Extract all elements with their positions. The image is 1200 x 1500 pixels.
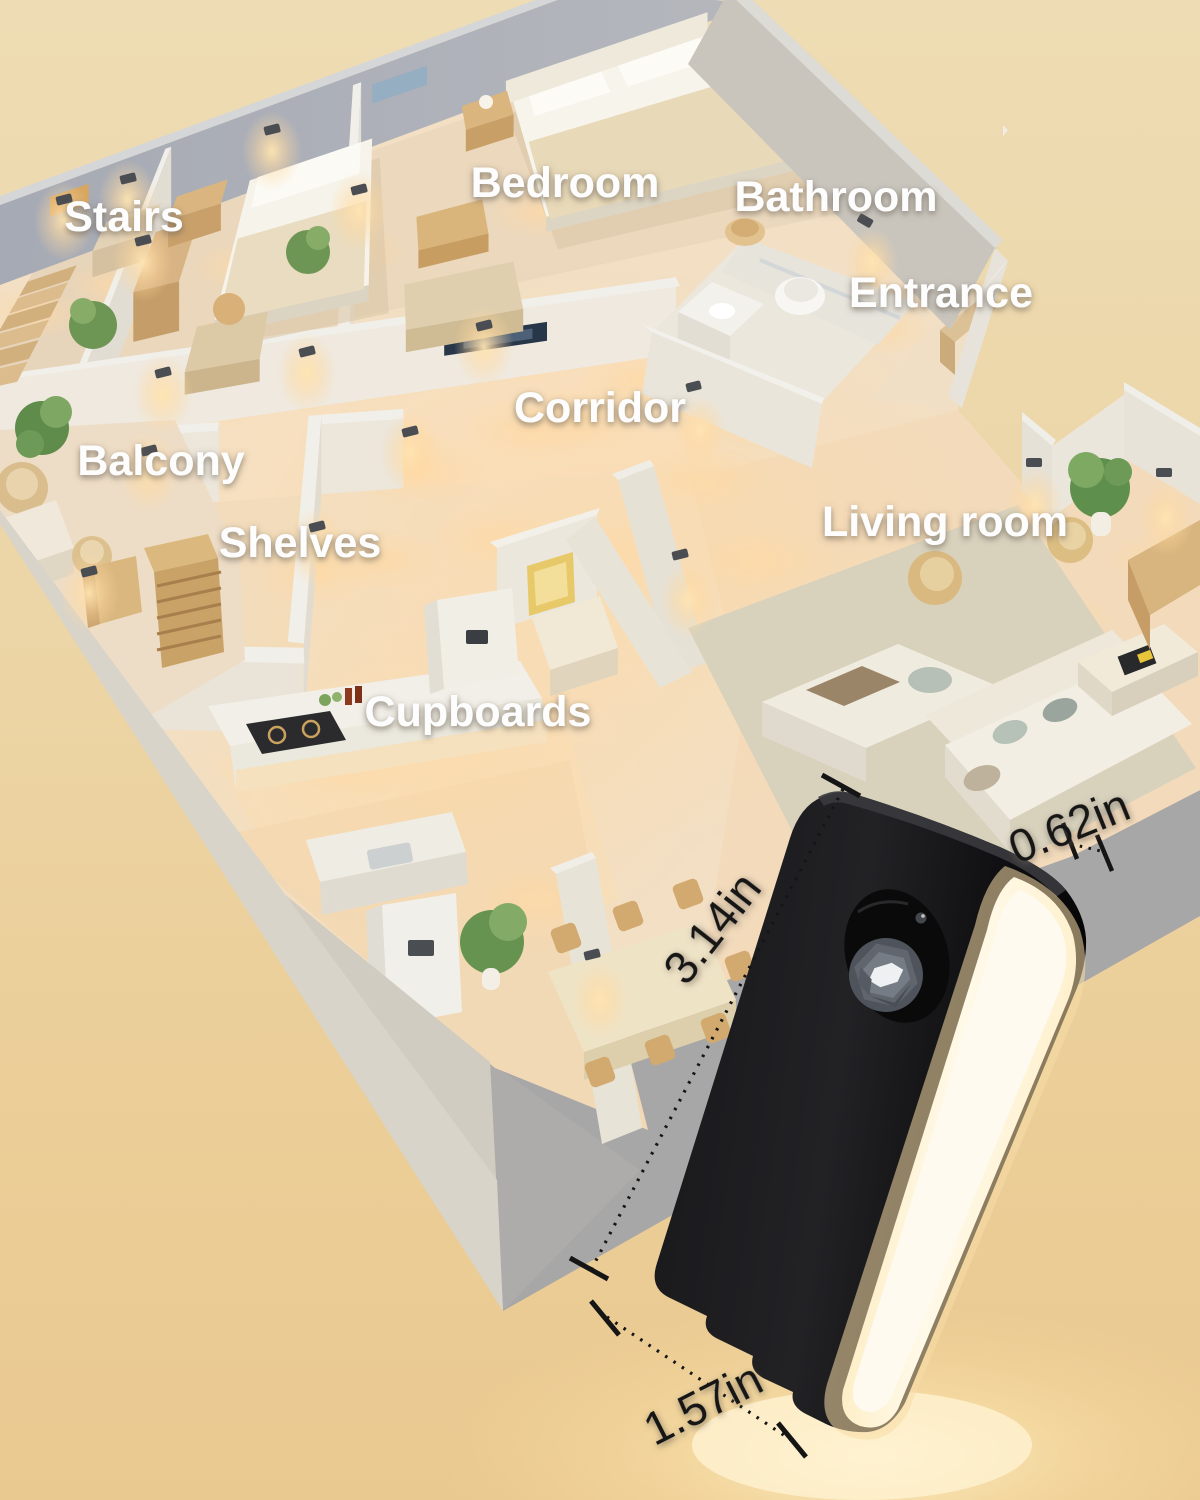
- svg-text:Stairs: Stairs: [64, 193, 184, 241]
- svg-text:Corridor: Corridor: [514, 384, 686, 432]
- svg-text:Bedroom: Bedroom: [471, 159, 660, 207]
- svg-text:Shelves: Shelves: [219, 519, 382, 567]
- svg-text:Cupboards: Cupboards: [365, 688, 592, 736]
- svg-text:Bathroom: Bathroom: [734, 173, 937, 221]
- svg-text:Living room: Living room: [822, 498, 1068, 546]
- svg-text:Entrance: Entrance: [849, 269, 1033, 317]
- svg-text:Balcony: Balcony: [77, 437, 244, 485]
